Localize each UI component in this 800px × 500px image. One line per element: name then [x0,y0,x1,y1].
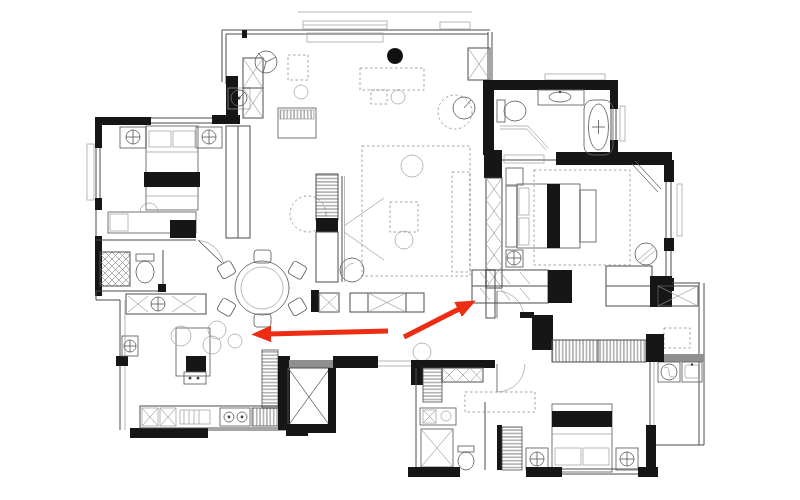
low-cabinet-row [311,290,424,312]
black-pendant [387,48,403,64]
piano [278,108,316,138]
exterior-outline [87,12,682,236]
room-bedroom-bottom [465,315,664,477]
room-living [290,146,572,312]
duct-x-strip [486,178,502,288]
shower-cabin [421,429,453,467]
cooktop [220,408,250,426]
pendant-lamp-2 [228,334,242,348]
wardrobe-top-left [226,126,250,238]
hall-cabinet-row [126,294,206,314]
bed-top-left [144,126,200,210]
entry-lamp [413,343,431,361]
bathtub [584,100,613,155]
shower-screen [500,126,548,150]
dining-table [235,261,289,315]
floor-plan-screenshot [0,0,800,500]
bottom-closet-row [552,340,646,362]
toilet-left [136,254,154,283]
floor-mirror [632,161,661,192]
master-wardrobe [606,266,652,306]
ceiling-fan [255,51,277,73]
room-laundry-balcony [650,283,704,445]
armchair [635,243,657,265]
washing-machine [658,362,680,382]
bottom-rug [465,392,535,412]
linen-closet-v [423,368,442,402]
room-small-bath-left [95,250,206,314]
room-study-lounge [222,30,492,138]
annotation-arrow-left [268,331,388,334]
door-bedroom-top-left [198,240,224,264]
kitchen-counter [140,406,288,428]
nightstand-right [196,127,222,148]
bottom-bedroom-door [497,364,525,392]
wall-basin [122,336,138,356]
pouf-chair [340,258,364,282]
dining-chairs [216,250,307,327]
hatched-closet [100,252,130,286]
kitchen-island [171,326,221,384]
linen-closet-h [442,368,483,382]
room-bathroom-top-right [483,80,672,165]
corridor-wardrobe [472,270,572,303]
nightstand-br [616,448,638,470]
bottom-wardrobe [502,427,522,470]
dashed-cabinet [288,55,308,80]
pendant-lamp-1 [208,321,226,339]
sofa-dashed [390,155,470,272]
floor-plan-svg [0,0,800,500]
vanity-sink-top [538,90,584,105]
room-master-bedroom [484,150,674,318]
room-kitchen [96,291,308,438]
nightstand-left [120,127,146,148]
projection-beam [344,198,384,260]
master-ceiling-lamp [506,250,523,267]
toilet-bottom [458,446,474,470]
room-bedroom-top-left [95,115,250,264]
stool [294,85,308,99]
study-desk [360,68,424,104]
pantry-shelving [262,350,278,408]
toilet-top [497,100,526,122]
bed-master [506,168,596,267]
small-desk [664,328,690,348]
elevator-shaft [278,356,378,433]
bed-bottom [526,404,638,472]
master-door [486,270,534,318]
living-rug [362,146,470,276]
column-x-step [468,48,490,80]
nightstand-bl [526,448,548,470]
desk-top-left [108,203,196,238]
tv-media-cabinet [316,174,384,282]
vanity-bottom [420,408,456,425]
hanging-chair-right [438,95,475,129]
